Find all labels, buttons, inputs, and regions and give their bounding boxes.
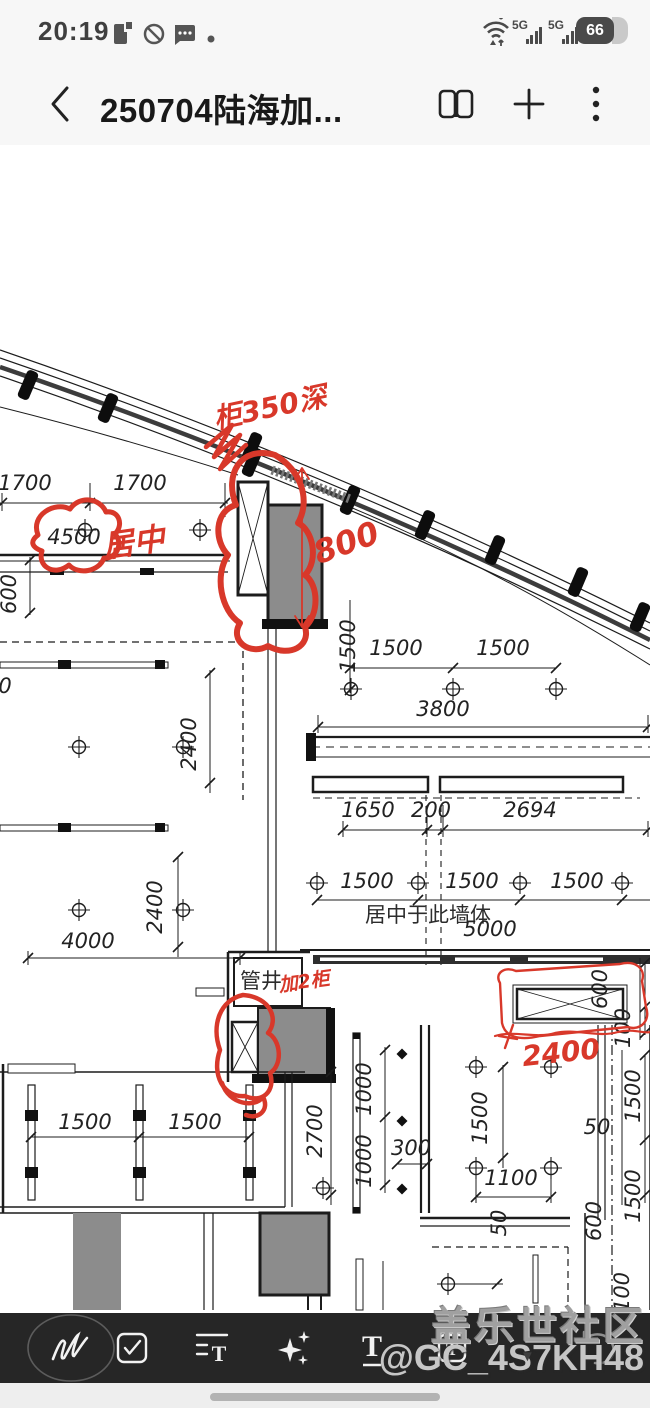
dimension-label: 1500: [340, 869, 393, 893]
dimension-label: 2400: [177, 717, 201, 770]
dimension-label: 200: [411, 798, 451, 822]
dimension-label: 2400: [143, 880, 167, 933]
dimension-label: 1500: [369, 636, 422, 660]
5g-signal-icon-2: 5G: [548, 20, 578, 46]
dimension-label: 1500: [336, 619, 360, 672]
dimension-label: 2700: [303, 1104, 327, 1157]
dimension-label: 1700: [0, 471, 52, 495]
text-format-icon: T: [184, 1320, 240, 1376]
dimension-label: 1500: [621, 1069, 645, 1122]
svg-text:T: T: [212, 1341, 227, 1366]
dimension-label: 1500: [468, 1091, 492, 1144]
red-outline-right-cabinet: [498, 963, 647, 1038]
plan-text-label: 管井: [240, 970, 282, 993]
dimension-label: 5000: [463, 917, 516, 941]
add-page-button[interactable]: [505, 80, 553, 128]
sparkles-icon: [266, 1320, 322, 1376]
dimension-label: 4500: [47, 525, 100, 549]
watermark-user-id: @GC_4S7KH48: [379, 1337, 644, 1379]
dimension-label: 1500: [476, 636, 529, 660]
sim-card-icon: [110, 22, 134, 51]
hatched-mullion-strip: [272, 470, 350, 499]
dimension-label: 300: [391, 1136, 431, 1160]
dimension-label: 1000: [352, 1062, 376, 1115]
more-options-button[interactable]: [572, 80, 620, 128]
home-indicator[interactable]: [210, 1393, 440, 1401]
mute-blocked-icon: [142, 22, 166, 51]
phone-screen: { "colors": {"red_ink":"#d8382a","line":…: [0, 0, 650, 1408]
5g-signal-icon-1: 5G: [512, 20, 542, 46]
red-ink-labels: 柜350深居中800加2柜2400: [99, 379, 601, 1073]
dimension-label: 50: [487, 1210, 511, 1237]
text-format-tool-button[interactable]: T: [184, 1320, 240, 1376]
notification-dot-icon: [207, 30, 215, 48]
app-header: 250704陆海加...: [0, 62, 650, 145]
dimension-label: 600: [588, 969, 612, 1009]
dimension-label: 2694: [503, 798, 556, 822]
dimension-label: 1500: [621, 1169, 645, 1222]
dropdown-caret-icon[interactable]: ▼: [520, 1348, 535, 1365]
red-handwritten-note: 加2柜: [276, 967, 334, 996]
message-icon: [172, 22, 196, 51]
dimension-label: 3800: [416, 697, 469, 721]
dimension-label: 1500: [550, 869, 603, 893]
red-handwritten-note: 2400: [521, 1032, 602, 1073]
status-bar: 20:19 5G 5G 66: [0, 0, 650, 62]
battery-cap: [612, 17, 628, 44]
dimension-label: 1000: [352, 1134, 376, 1187]
dimension-label: 1500: [58, 1110, 111, 1134]
dimension-label: 50: [584, 1115, 611, 1139]
dimension-label: 1700: [113, 471, 166, 495]
floorplan-drawing: 1700170045006001500150015003800240024004…: [0, 145, 650, 1313]
dimension-label: 1650: [341, 798, 394, 822]
floorplan-canvas[interactable]: 1700170045006001500150015003800240024004…: [0, 145, 650, 1313]
dimension-label: 1100: [484, 1166, 537, 1190]
dimension-label: 1500: [445, 869, 498, 893]
dimension-label: 1500: [168, 1110, 221, 1134]
clock: 20:19: [38, 16, 110, 47]
dimension-label: 600: [582, 1201, 606, 1241]
back-button[interactable]: [36, 80, 84, 128]
dimension-label: 600: [0, 574, 21, 614]
red-handwritten-note: 居中: [99, 521, 169, 566]
checkbox-tool-button[interactable]: [104, 1320, 160, 1376]
dimension-label: 4000: [61, 929, 114, 953]
ai-sparkles-tool-button[interactable]: [266, 1320, 322, 1376]
checkbox-icon: [118, 1334, 146, 1362]
reader-mode-icon[interactable]: [432, 80, 480, 128]
wifi-icon: [480, 18, 512, 53]
pen-squiggle-icon: [53, 1335, 87, 1359]
dimension-label: 0: [0, 674, 12, 698]
battery-indicator: 66: [576, 17, 614, 44]
document-title: 250704陆海加...: [100, 84, 343, 132]
red-handwritten-note: 柜350深: [211, 379, 334, 436]
